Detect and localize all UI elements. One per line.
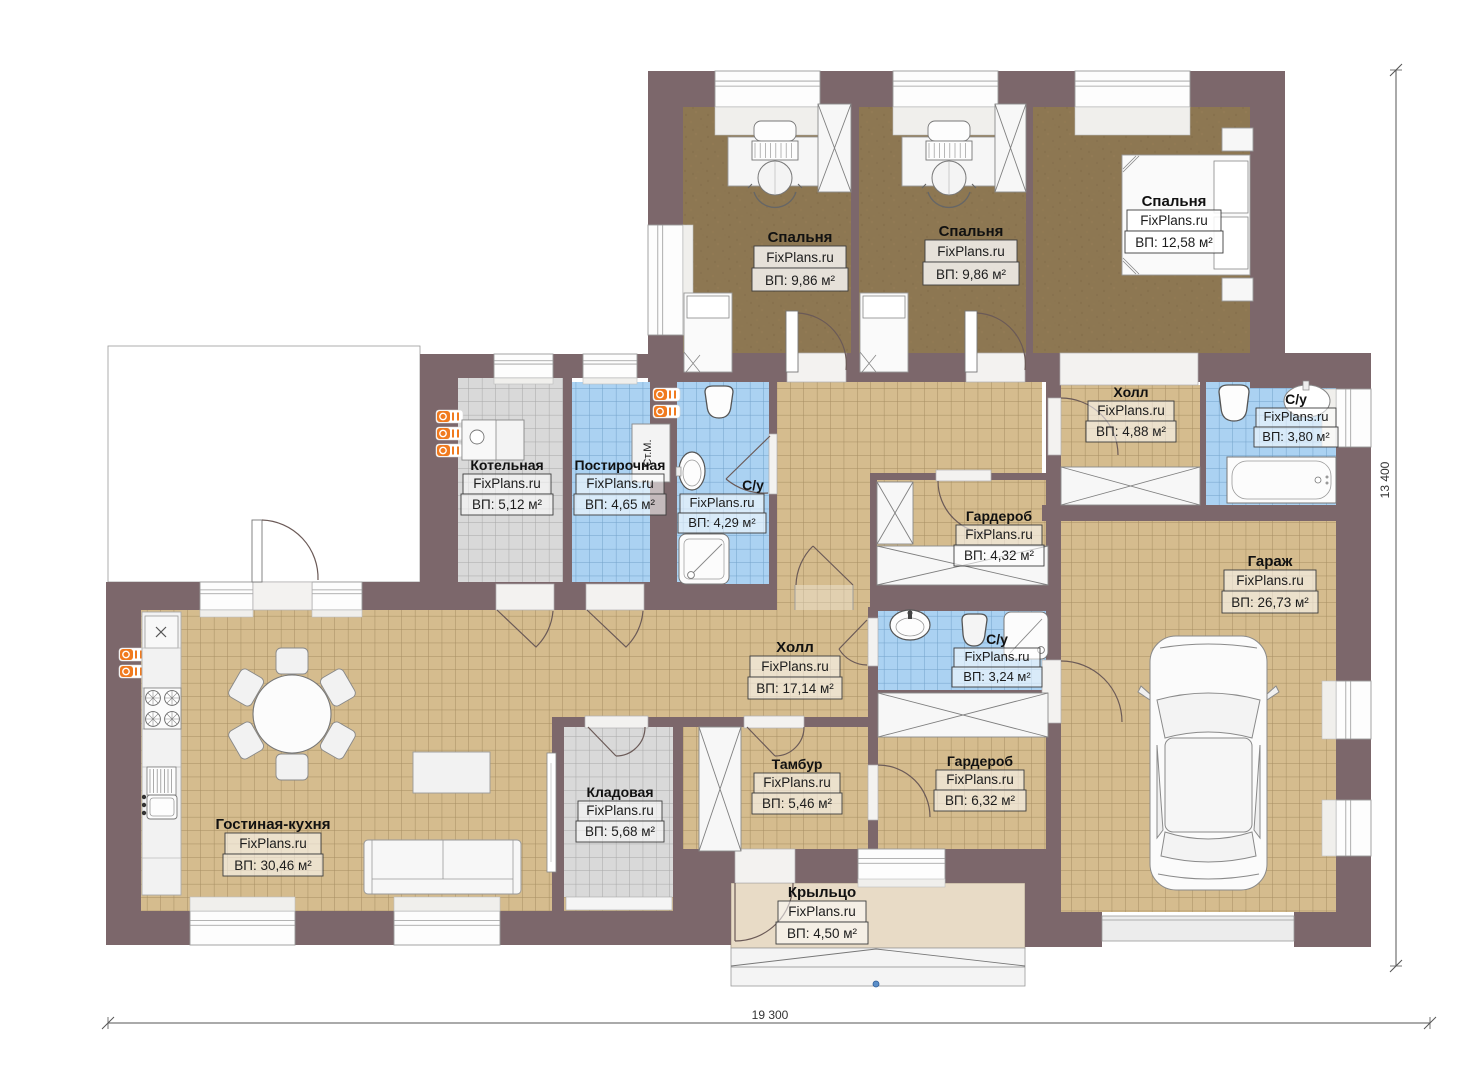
svg-text:FixPlans.ru: FixPlans.ru (964, 649, 1029, 664)
svg-text:Гостиная-кухня: Гостиная-кухня (216, 816, 331, 833)
svg-text:ВП: 6,32 м²: ВП: 6,32 м² (945, 793, 1016, 808)
svg-text:ВП: 4,88 м²: ВП: 4,88 м² (1096, 424, 1167, 439)
svg-text:FixPlans.ru: FixPlans.ru (937, 244, 1005, 259)
svg-text:ВП: 3,80 м²: ВП: 3,80 м² (1262, 429, 1330, 444)
svg-text:Холл: Холл (1113, 384, 1148, 400)
svg-text:Гардероб: Гардероб (947, 753, 1014, 769)
svg-text:FixPlans.ru: FixPlans.ru (1140, 213, 1208, 228)
svg-text:ВП: 5,46 м²: ВП: 5,46 м² (762, 796, 833, 811)
svg-text:FixPlans.ru: FixPlans.ru (766, 250, 834, 265)
svg-text:С/у: С/у (986, 631, 1008, 647)
svg-text:FixPlans.ru: FixPlans.ru (586, 476, 654, 491)
svg-text:Котельная: Котельная (470, 457, 543, 473)
svg-text:13 400: 13 400 (1378, 461, 1392, 498)
svg-text:FixPlans.ru: FixPlans.ru (586, 803, 654, 818)
svg-text:ВП: 9,86 м²: ВП: 9,86 м² (936, 267, 1007, 282)
svg-text:FixPlans.ru: FixPlans.ru (239, 836, 307, 851)
svg-text:FixPlans.ru: FixPlans.ru (1097, 403, 1165, 418)
svg-text:FixPlans.ru: FixPlans.ru (763, 775, 831, 790)
svg-text:Спальня: Спальня (768, 229, 833, 246)
svg-text:Гараж: Гараж (1248, 553, 1293, 570)
svg-text:Спальня: Спальня (939, 223, 1004, 240)
svg-text:ВП: 5,12 м²: ВП: 5,12 м² (472, 497, 543, 512)
svg-text:Кладовая: Кладовая (586, 784, 653, 800)
svg-text:Крыльцо: Крыльцо (788, 884, 856, 901)
svg-text:С/у: С/у (1285, 391, 1307, 407)
svg-text:Холл: Холл (776, 639, 814, 656)
svg-text:Постирочная: Постирочная (575, 457, 666, 473)
svg-text:ВП: 4,29 м²: ВП: 4,29 м² (688, 515, 756, 530)
svg-text:Тамбур: Тамбур (772, 756, 823, 772)
svg-text:ВП: 4,50 м²: ВП: 4,50 м² (787, 926, 858, 941)
svg-text:ВП: 30,46 м²: ВП: 30,46 м² (234, 858, 312, 873)
svg-text:FixPlans.ru: FixPlans.ru (965, 527, 1033, 542)
svg-text:ВП: 9,86 м²: ВП: 9,86 м² (765, 273, 836, 288)
svg-text:С/у: С/у (742, 477, 764, 493)
svg-text:FixPlans.ru: FixPlans.ru (689, 495, 754, 510)
svg-text:Спальня: Спальня (1142, 193, 1207, 210)
svg-text:FixPlans.ru: FixPlans.ru (1263, 409, 1328, 424)
svg-text:ВП: 12,58 м²: ВП: 12,58 м² (1135, 235, 1213, 250)
svg-text:FixPlans.ru: FixPlans.ru (788, 904, 856, 919)
svg-text:19 300: 19 300 (752, 1008, 789, 1022)
svg-text:ВП: 4,32 м²: ВП: 4,32 м² (964, 548, 1035, 563)
svg-text:ВП: 4,65 м²: ВП: 4,65 м² (585, 497, 656, 512)
svg-text:FixPlans.ru: FixPlans.ru (946, 772, 1014, 787)
svg-text:ВП: 5,68 м²: ВП: 5,68 м² (585, 824, 656, 839)
svg-text:FixPlans.ru: FixPlans.ru (473, 476, 541, 491)
svg-text:FixPlans.ru: FixPlans.ru (1236, 573, 1304, 588)
svg-text:ВП: 26,73 м²: ВП: 26,73 м² (1231, 595, 1309, 610)
svg-text:Гардероб: Гардероб (966, 508, 1033, 524)
svg-text:ВП: 17,14 м²: ВП: 17,14 м² (756, 681, 834, 696)
svg-text:ВП: 3,24 м²: ВП: 3,24 м² (963, 669, 1031, 684)
svg-text:FixPlans.ru: FixPlans.ru (761, 659, 829, 674)
